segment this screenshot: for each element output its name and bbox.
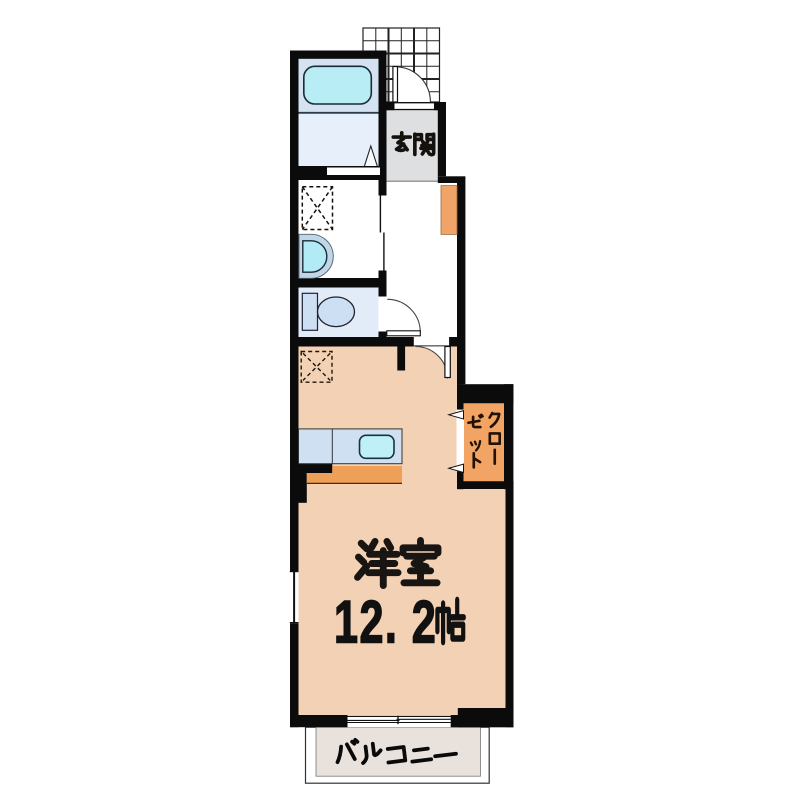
svg-text:12. 2: 12. 2 xyxy=(334,590,437,657)
